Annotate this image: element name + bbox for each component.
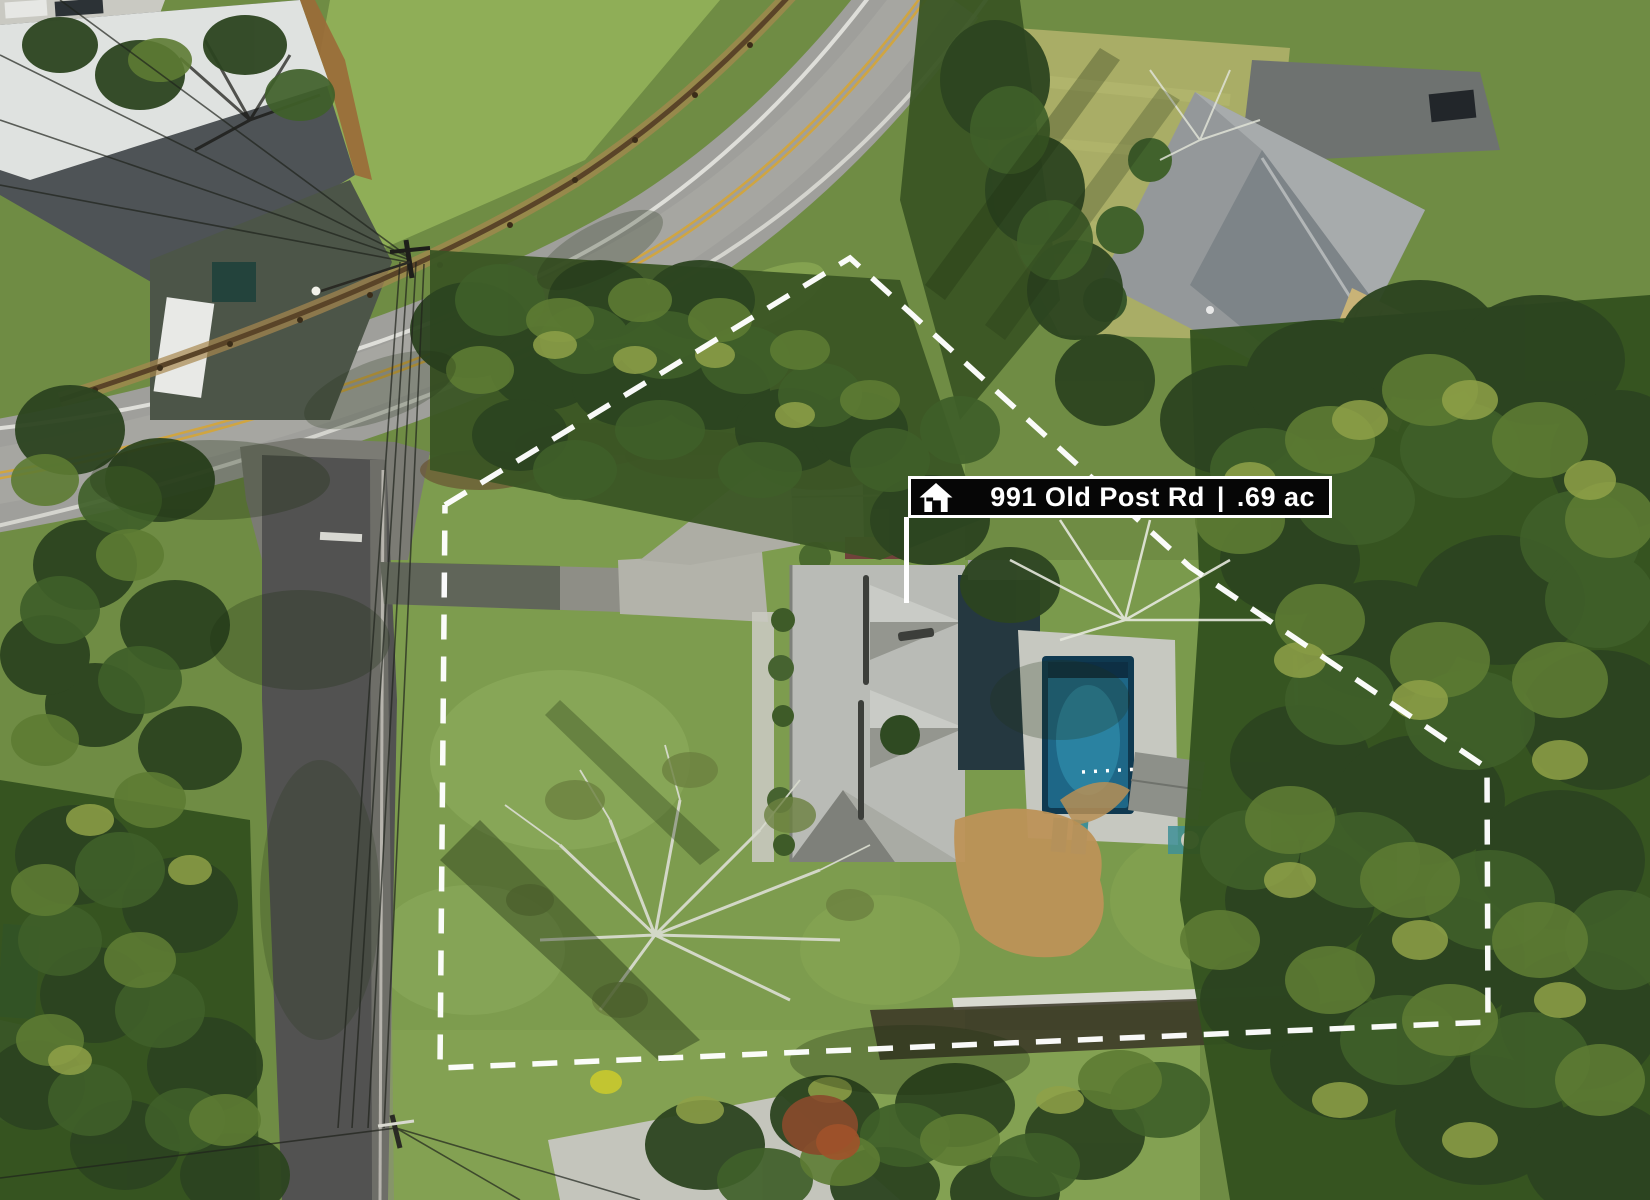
- satellite-dish: [1206, 306, 1214, 314]
- shrub: [771, 608, 795, 632]
- parked-car: [4, 0, 47, 18]
- ridge-vent: [858, 700, 864, 820]
- shrub: [772, 705, 794, 727]
- ridge-vent: [863, 575, 869, 685]
- shrub: [880, 715, 920, 755]
- parked-car: [1429, 90, 1477, 123]
- house-icon: [918, 482, 954, 513]
- yellow-bush: [590, 1070, 622, 1094]
- shrub: [773, 834, 795, 856]
- autumn-tree: [816, 1124, 860, 1160]
- banner-address: 991 Old Post Rd: [990, 482, 1205, 512]
- aerial-photo: 991 Old Post Rd|.69 ac: [0, 0, 1650, 1200]
- shrub: [768, 655, 794, 681]
- banner-divider: |: [1217, 482, 1225, 512]
- leader-line: [904, 517, 909, 603]
- banner-area: .69 ac: [1237, 482, 1315, 512]
- parked-car: [212, 262, 256, 302]
- banner-text: 991 Old Post Rd|.69 ac: [954, 482, 1329, 513]
- address-banner: 991 Old Post Rd|.69 ac: [908, 476, 1332, 518]
- street-light: [312, 287, 321, 296]
- aerial-scene: [0, 0, 1650, 1200]
